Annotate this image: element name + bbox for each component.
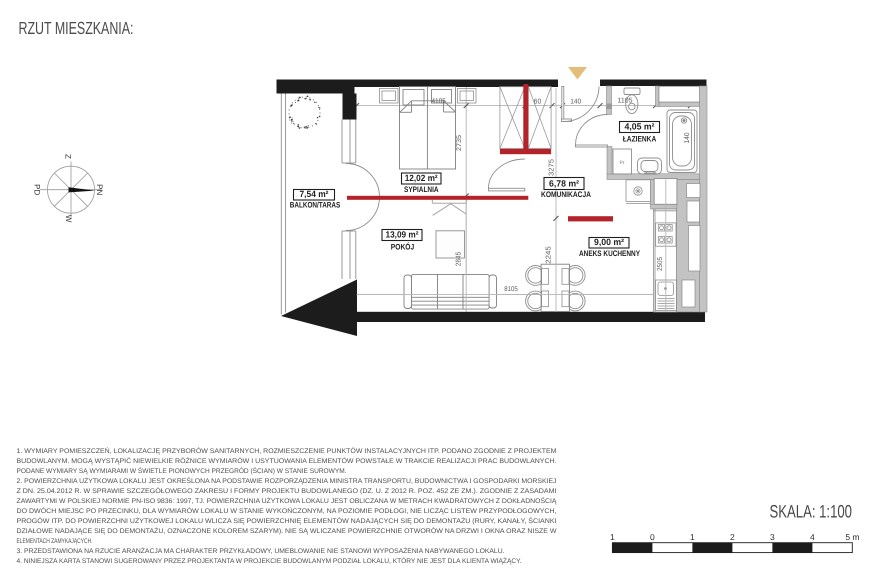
svg-text:1. WYMIARY POMIESZCZEŃ, LOKALI: 1. WYMIARY POMIESZCZEŃ, LOKALIZACJĘ PRZY… [17, 447, 557, 455]
svg-text:6,78 m²: 6,78 m² [549, 179, 579, 189]
svg-text:W: W [64, 215, 73, 223]
svg-text:SKALA: 1:100: SKALA: 1:100 [770, 502, 853, 522]
svg-text:4: 4 [810, 532, 815, 542]
svg-text:Z: Z [63, 154, 72, 159]
svg-text:SYPIALNIA: SYPIALNIA [404, 185, 439, 194]
svg-text:KOMUNIKACJA: KOMUNIKACJA [541, 190, 591, 199]
svg-text:DO DWÓCH MIEJSC PO PRZECINKU,: DO DWÓCH MIEJSC PO PRZECINKU, DLA WYMIAR… [17, 507, 557, 515]
svg-text:3: 3 [770, 532, 775, 542]
svg-text:9,00 m²: 9,00 m² [594, 237, 624, 247]
svg-text:2. POWIERZCHNIA UŻYTKOWA LOKAL: 2. POWIERZCHNIA UŻYTKOWA LOKALU JEST OKR… [17, 477, 557, 485]
svg-text:2: 2 [730, 532, 735, 542]
svg-text:ELEMENTACH ZAMYKAJĄCYCH.: ELEMENTACH ZAMYKAJĄCYCH. [17, 538, 93, 545]
svg-text:PROGÓW ITP. DO POWIERZCHNI UŻY: PROGÓW ITP. DO POWIERZCHNI UŻYTKOWEJ LOK… [17, 517, 557, 525]
svg-text:1: 1 [690, 532, 695, 542]
svg-text:4,05 m²: 4,05 m² [625, 122, 655, 132]
svg-text:Pr: Pr [620, 160, 625, 166]
svg-text:8105: 8105 [504, 286, 518, 293]
svg-text:1: 1 [610, 532, 615, 542]
svg-text:2505: 2505 [657, 257, 664, 271]
svg-text:BUDOWLANYM. MOGĄ WYSTĄPIĆ NIEW: BUDOWLANYM. MOGĄ WYSTĄPIĆ NIEWIELKIE RÓŻ… [17, 457, 557, 465]
svg-text:DZIAŁOWE NADAJĄCE SIĘ DO DEMON: DZIAŁOWE NADAJĄCE SIĘ DO DEMONTAŻU, OZNA… [17, 527, 558, 535]
svg-text:ANEKS KUCHENNY: ANEKS KUCHENNY [579, 249, 641, 258]
svg-text:4. NINIEJSZA KARTA STANOWI SUG: 4. NINIEJSZA KARTA STANOWI SUGEROWANY PR… [17, 557, 522, 565]
svg-text:3. PRZEDSTAWIONA NA RZUCIE ARA: 3. PRZEDSTAWIONA NA RZUCIE ARANŻACJA MA … [17, 547, 505, 555]
svg-text:BALKON/TARAS: BALKON/TARAS [290, 201, 341, 210]
svg-text:Z DN. 25.04.2012 R. W SPRAWIE: Z DN. 25.04.2012 R. W SPRAWIE SZCZEGÓŁOW… [17, 487, 557, 495]
svg-text:5 m: 5 m [845, 532, 859, 542]
svg-text:RZUT MIESZKANIA:: RZUT MIESZKANIA: [19, 18, 134, 38]
svg-text:2845: 2845 [456, 252, 463, 267]
svg-text:13,09 m²: 13,09 m² [386, 230, 419, 240]
svg-text:2735: 2735 [456, 135, 463, 151]
svg-text:0: 0 [650, 532, 655, 542]
svg-text:12,02 m²: 12,02 m² [405, 173, 438, 183]
svg-text:4105: 4105 [431, 98, 446, 105]
svg-text:PODANE WYMIARY SĄ WYMIARAMI W: PODANE WYMIARY SĄ WYMIARAMI W ŚWIETLE PI… [17, 467, 347, 475]
svg-text:7,54 m²: 7,54 m² [300, 189, 329, 199]
svg-text:2245: 2245 [546, 246, 553, 264]
svg-text:140: 140 [570, 99, 581, 106]
svg-text:ZAWARTYMI W POLSKIEJ NORMIE PN: ZAWARTYMI W POLSKIEJ NORMIE PN-ISO 9836:… [17, 497, 558, 505]
svg-text:PD: PD [32, 184, 41, 195]
svg-text:60: 60 [534, 99, 542, 106]
svg-text:1105: 1105 [618, 98, 633, 105]
svg-text:PN: PN [95, 184, 104, 195]
svg-text:ŁAZIENKA: ŁAZIENKA [623, 134, 657, 143]
svg-text:3275: 3275 [549, 159, 556, 176]
svg-text:POKÓJ: POKÓJ [391, 242, 415, 252]
svg-text:140: 140 [684, 132, 691, 143]
